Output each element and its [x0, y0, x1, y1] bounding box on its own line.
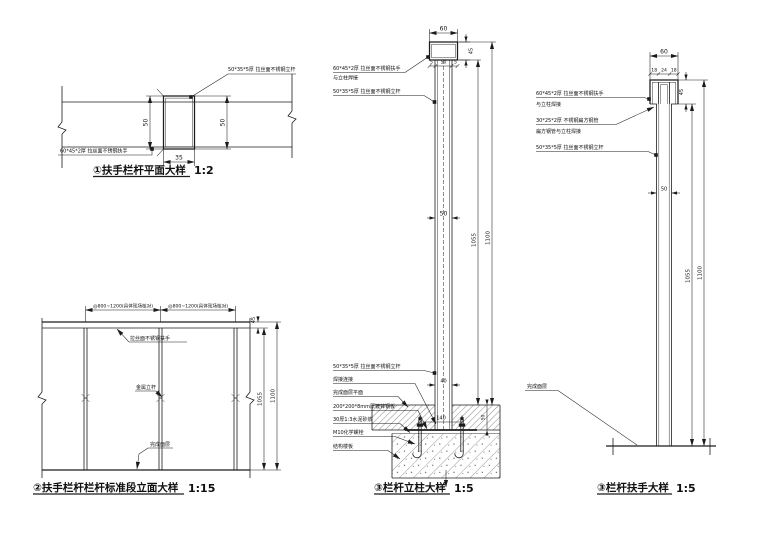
dim-label-bay-2: @800~1200(具体现场核对) — [168, 303, 228, 310]
rail-floor-line — [606, 438, 716, 455]
rail-tube-label-1: 30*25*2厚 不锈钢扁方钢管 — [536, 117, 599, 124]
dim-label-post-1055: 1055 — [472, 233, 478, 247]
elevation-title: ②扶手栏杆栏杆标准段立面大样 — [33, 481, 179, 494]
dim-label-cap-5r: 5 — [454, 60, 457, 66]
dim-label-cap-5l: 5 — [430, 60, 433, 66]
dim-label-finish-50: 50 — [481, 415, 487, 421]
dim-label-elev-rail-h: 45 — [251, 317, 257, 323]
dim-label-rail-1055: 1055 — [686, 269, 692, 283]
plan-title: ①扶手栏杆平面大样 — [93, 164, 186, 177]
technical-drawing-canvas: 50 50 35 50*35*5厚 拉丝面不锈钢立杆 60*45*2厚 拉丝面不… — [0, 0, 760, 535]
dim-label-plan-width: 35 — [175, 155, 183, 162]
mortar-label: 30厚1:3水泥砂浆 — [333, 416, 372, 423]
rail-post-label: 50*35*5厚 拉丝面不锈钢立杆 — [536, 144, 604, 151]
rail-title: ③栏杆扶手大样 — [597, 481, 669, 494]
dim-label-18r: 18 — [671, 68, 677, 74]
dim-label-140: 140 — [436, 416, 446, 422]
dim-label-rail-post-50: 50 — [661, 187, 667, 193]
plate-label: 200*200*8mm厚镀锌钢板 — [333, 403, 395, 410]
rail-post-body — [657, 104, 672, 446]
dim-label-elev-1100: 1100 — [271, 389, 277, 403]
post-lower-label: 50*35*5厚 拉丝面不锈钢立杆 — [333, 363, 401, 370]
dim-label-plan-right: 50 — [220, 119, 227, 127]
post-detail-drawing: 60 45 5 50 5 50 1055 1100 — [333, 26, 500, 496]
dim-label-rail-45: 45 — [679, 89, 685, 95]
rail-rail-label-2: 与立柱焊接 — [536, 101, 561, 108]
elevation-rail-label: 拉丝面不锈钢扶手 — [130, 335, 170, 342]
rail-detail-drawing: 60 18 24 18 45 50 — [525, 49, 716, 496]
dim-label-bay-1: @800~1200(具体现场核对) — [93, 303, 153, 310]
rail-rail-label-1: 60*45*2厚 拉丝面不锈钢扶手 — [536, 90, 604, 97]
elevation-scale: 1:15 — [188, 482, 215, 495]
drawing-sheet: 50 50 35 50*35*5厚 拉丝面不锈钢立杆 60*45*2厚 拉丝面不… — [0, 0, 760, 535]
elevation-post-label: 金属立杆 — [136, 384, 156, 391]
slab-label: 结构楼板 — [333, 443, 353, 450]
elevation-drawing: @800~1200(具体现场核对) @800~1200(具体现场核对) 45 1… — [33, 303, 281, 496]
dim-label-post-45: 45 — [469, 48, 475, 54]
dim-label-24: 24 — [661, 68, 667, 74]
post-rail-label-1: 60*45*2厚 拉丝面不锈钢扶手 — [333, 65, 401, 72]
plan-post-label: 50*35*5厚 拉丝面不锈钢立杆 — [228, 66, 296, 73]
rail-scale: 1:5 — [676, 482, 696, 495]
rail-channel-section — [650, 80, 678, 104]
dim-label-plan-left: 50 — [143, 119, 150, 127]
rail-cap-section — [430, 42, 458, 60]
weld-label: 焊接连接 — [333, 376, 353, 383]
dim-label-post-mid-50: 50 — [440, 211, 448, 218]
post-body — [435, 60, 452, 430]
dim-label-elev-1055: 1055 — [258, 392, 264, 406]
elevation-floor-label: 完成面层 — [150, 441, 170, 448]
finish-level-label: 完成面层平面 — [333, 389, 363, 396]
dim-label-18l: 18 — [651, 68, 657, 74]
post-scale: 1:5 — [454, 482, 474, 495]
rail-tube-label-2: 扁方钢管与立柱焊接 — [536, 128, 581, 135]
dim-label-rail-60: 60 — [660, 49, 668, 56]
post-title: ③栏杆立柱大样 — [374, 481, 446, 494]
dim-label-rail-1100: 1100 — [698, 266, 704, 280]
rail-floor-label: 完成面层 — [527, 383, 547, 390]
dim-label-post-60: 60 — [440, 26, 448, 33]
plan-rail-label: 60*45*2厚 拉丝面不锈钢扶手 — [60, 148, 128, 155]
plan-detail-drawing: 50 50 35 50*35*5厚 拉丝面不锈钢立杆 60*45*2厚 拉丝面不… — [58, 66, 296, 177]
dim-label-post-40: 40 — [440, 379, 446, 385]
plan-scale: 1:2 — [194, 164, 214, 177]
elevation-posts — [82, 328, 240, 470]
post-upper-label: 50*35*5厚 拉丝面不锈钢立杆 — [333, 88, 401, 95]
dim-label-post-1100: 1100 — [486, 231, 492, 245]
anchor-label: M10化学螺栓 — [333, 429, 364, 436]
post-section-outline — [164, 96, 195, 149]
post-rail-label-2: 与立柱焊接 — [333, 75, 358, 82]
